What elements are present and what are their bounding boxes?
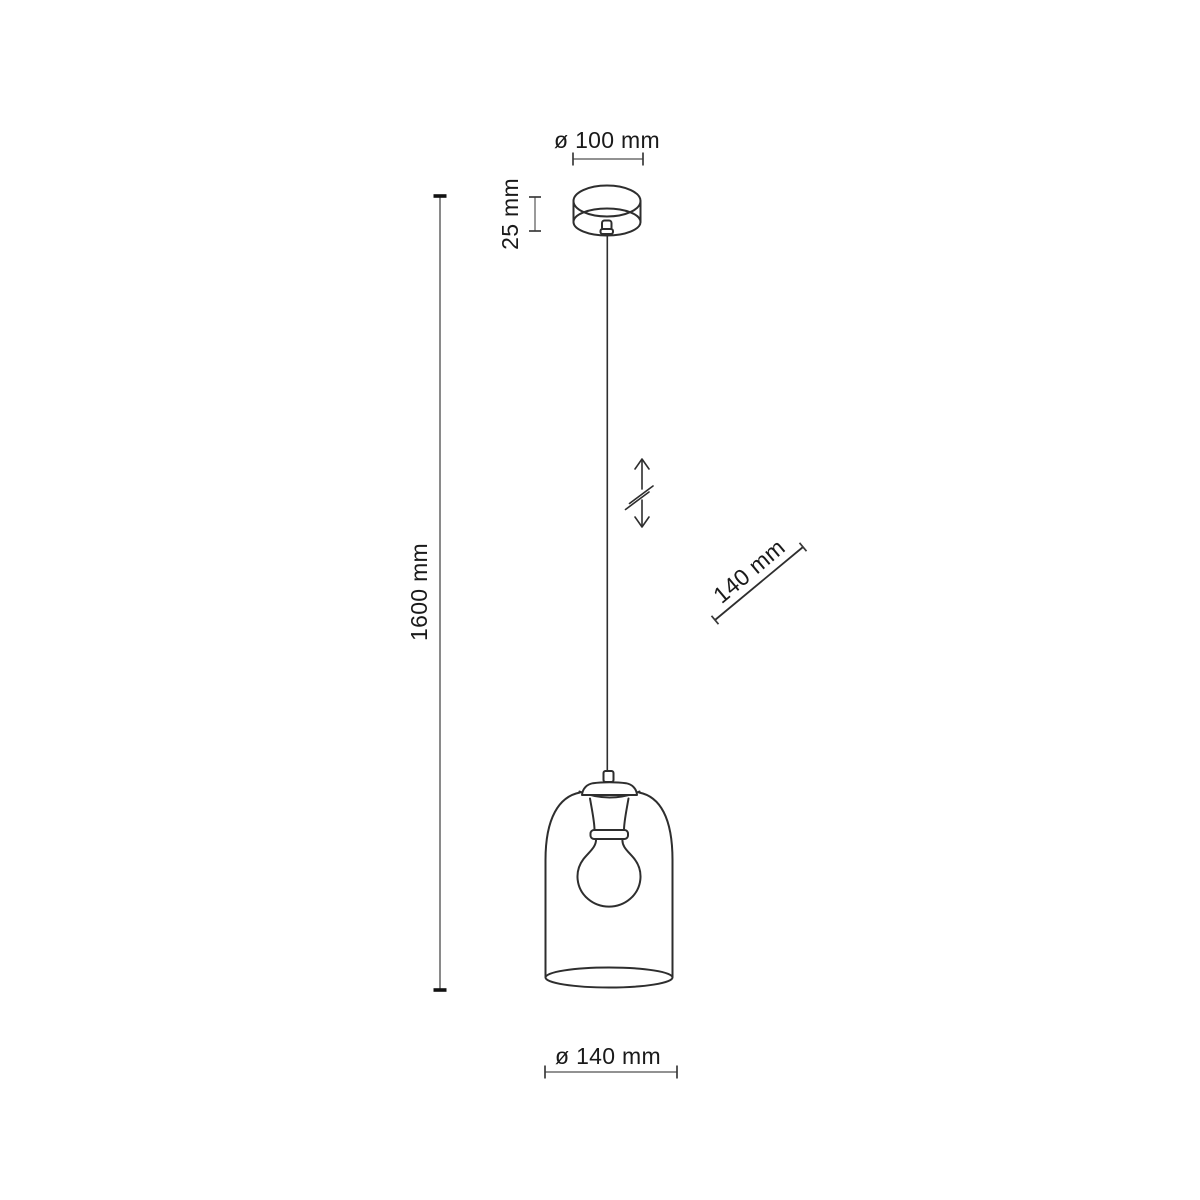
socket-left-outline bbox=[590, 799, 595, 831]
break-slash-2 bbox=[626, 492, 650, 510]
shade-height-label: 140 mm bbox=[708, 534, 790, 608]
dim-canopy-height: 25 mm bbox=[497, 178, 541, 250]
socket-ring bbox=[591, 830, 629, 839]
pendant-lamp-dimension-diagram: ø 100 mm 25 mm 1600 mm bbox=[0, 0, 1200, 1200]
shade-drawing bbox=[546, 771, 673, 988]
shade-diameter-label: ø 140 mm bbox=[555, 1043, 661, 1069]
bulb-outline bbox=[578, 839, 641, 907]
canopy-height-label: 25 mm bbox=[497, 178, 523, 250]
canopy-diameter-label: ø 100 mm bbox=[554, 127, 660, 153]
dim-canopy-diameter: ø 100 mm bbox=[554, 127, 660, 166]
overall-length-label: 1600 mm bbox=[406, 543, 432, 641]
dim-overall-length: 1600 mm bbox=[406, 196, 446, 990]
dim-shade-height: 140 mm bbox=[708, 534, 806, 624]
shade-cap bbox=[582, 782, 637, 795]
cable-grip-collar bbox=[601, 229, 614, 234]
glass-bottom-ellipse bbox=[546, 968, 673, 988]
socket-right-outline bbox=[624, 799, 629, 831]
adjustable-height-icon bbox=[626, 459, 654, 527]
glass-left-outline bbox=[546, 793, 581, 978]
canopy-drawing bbox=[574, 186, 641, 236]
cable-connector bbox=[604, 771, 614, 782]
dim-shade-diameter: ø 140 mm bbox=[545, 1043, 677, 1079]
diagram-canvas: ø 100 mm 25 mm 1600 mm bbox=[0, 0, 1200, 1200]
glass-right-outline bbox=[639, 793, 673, 978]
